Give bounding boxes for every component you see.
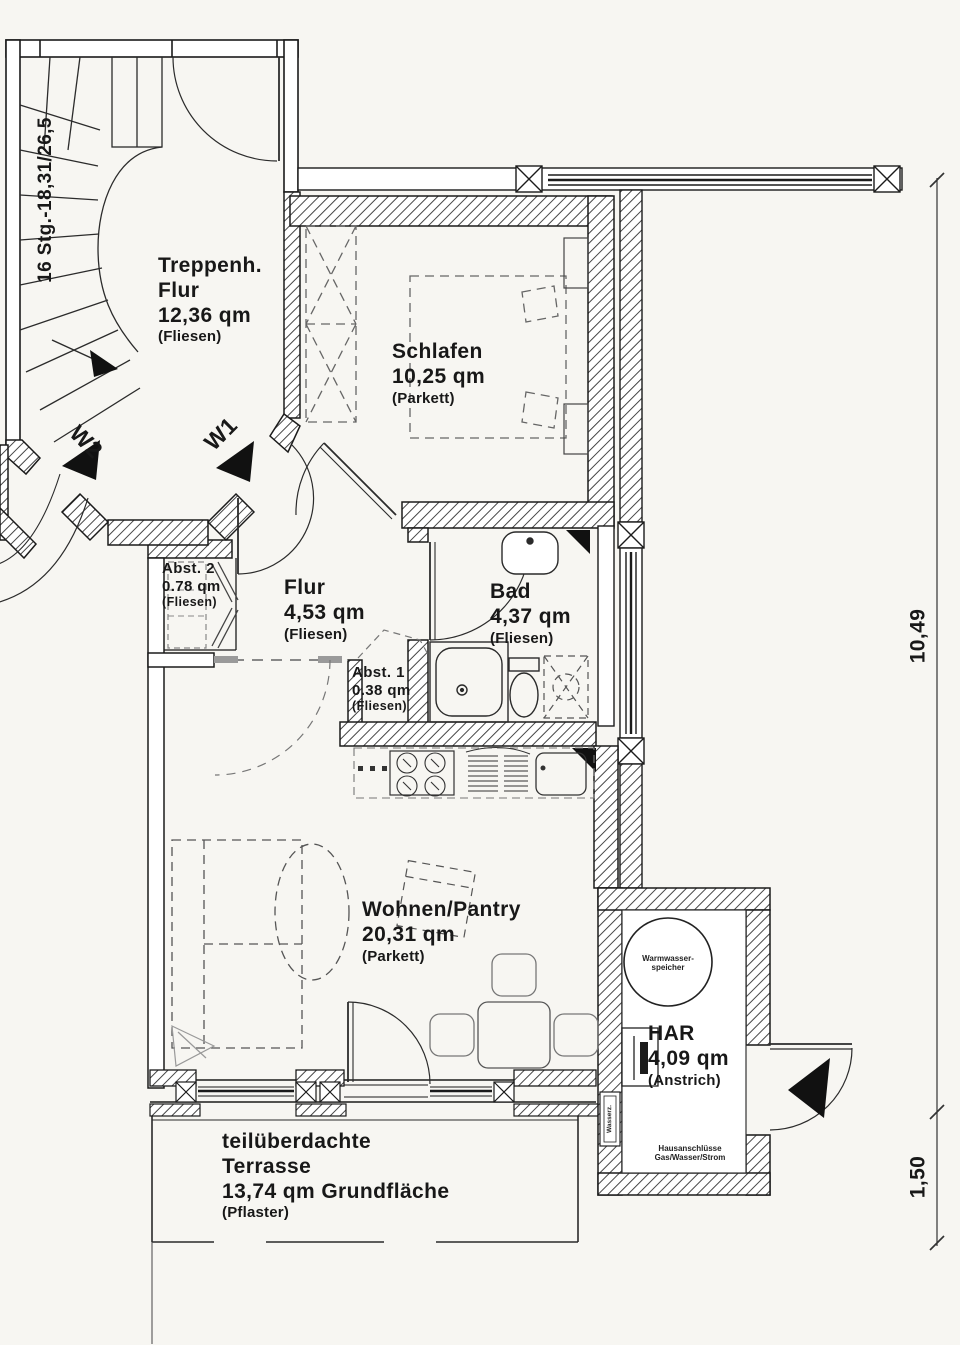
plant [172,1026,214,1066]
dimension-terrace-label: 1,50 [907,1156,932,1198]
washing-machine-space [544,656,588,718]
bad-east-wall [598,526,614,726]
terrace-door [348,1002,430,1084]
shaft-triangle-bad [566,530,590,554]
stairs-direction-arrow [90,350,118,377]
room-label-treppenhaus: Treppenh. Flur 12,36 qm (Fliesen) [158,254,262,346]
wardrobe [306,226,356,422]
room-label-abst1: Abst. 1 0.38 qm (Fliesen) [352,664,411,714]
meter-label: Wasserz. [606,1105,614,1133]
shaft-triangle-kitchen [572,748,596,772]
shower [430,642,508,722]
toilet [509,658,539,717]
hob-dots [358,766,387,771]
stairwell-entrance-door [173,57,279,161]
room-label-abst2: Abst. 2 0.78 qm (Fliesen) [162,560,221,610]
room-label-wohnen: Wohnen/Pantry 20,31 qm (Parkett) [362,898,521,965]
sofa [172,840,302,1048]
house-connections-label: Hausanschlüsse Gas/Wasser/Strom [655,1144,726,1162]
water-heater-label: Warmwasser- speicher [642,954,694,972]
dimension-line [930,173,944,1250]
room-label-schlafen: Schlafen 10,25 qm (Parkett) [392,340,485,407]
stairs-label: 16 Stg.-18,31/26,5 [35,117,57,283]
room-label-flur: Flur 4,53 qm (Fliesen) [284,576,365,643]
bath-sink [502,532,558,574]
har-door-arrow [788,1058,830,1118]
north-facade-window-band [298,166,902,192]
schlafen-door [296,443,396,519]
east-facade-window-band [618,190,644,888]
dining-set [430,954,598,1068]
floor-plan-drawing [0,0,960,1345]
dimension-total-label: 10,49 [907,609,932,664]
room-label-har: HAR 4,09 qm (Anstrich) [648,1022,729,1089]
room-label-bad: Bad 4,37 qm (Fliesen) [490,580,571,647]
coffee-table [275,844,349,980]
har-entry-door [746,1044,852,1135]
dish-drainer [466,747,530,791]
nightstands [564,238,588,454]
kitchen-unit [354,747,594,798]
room-label-terrasse: teilüberdachte Terrasse 13,74 qm Grundfl… [222,1130,449,1222]
flur-wohnen-passage [214,656,348,775]
wohnen-south-wall [150,1070,600,1116]
kitchen-sink [536,753,586,795]
floor-plan-page: Treppenh. Flur 12,36 qm (Fliesen) 16 Stg… [0,0,960,1345]
